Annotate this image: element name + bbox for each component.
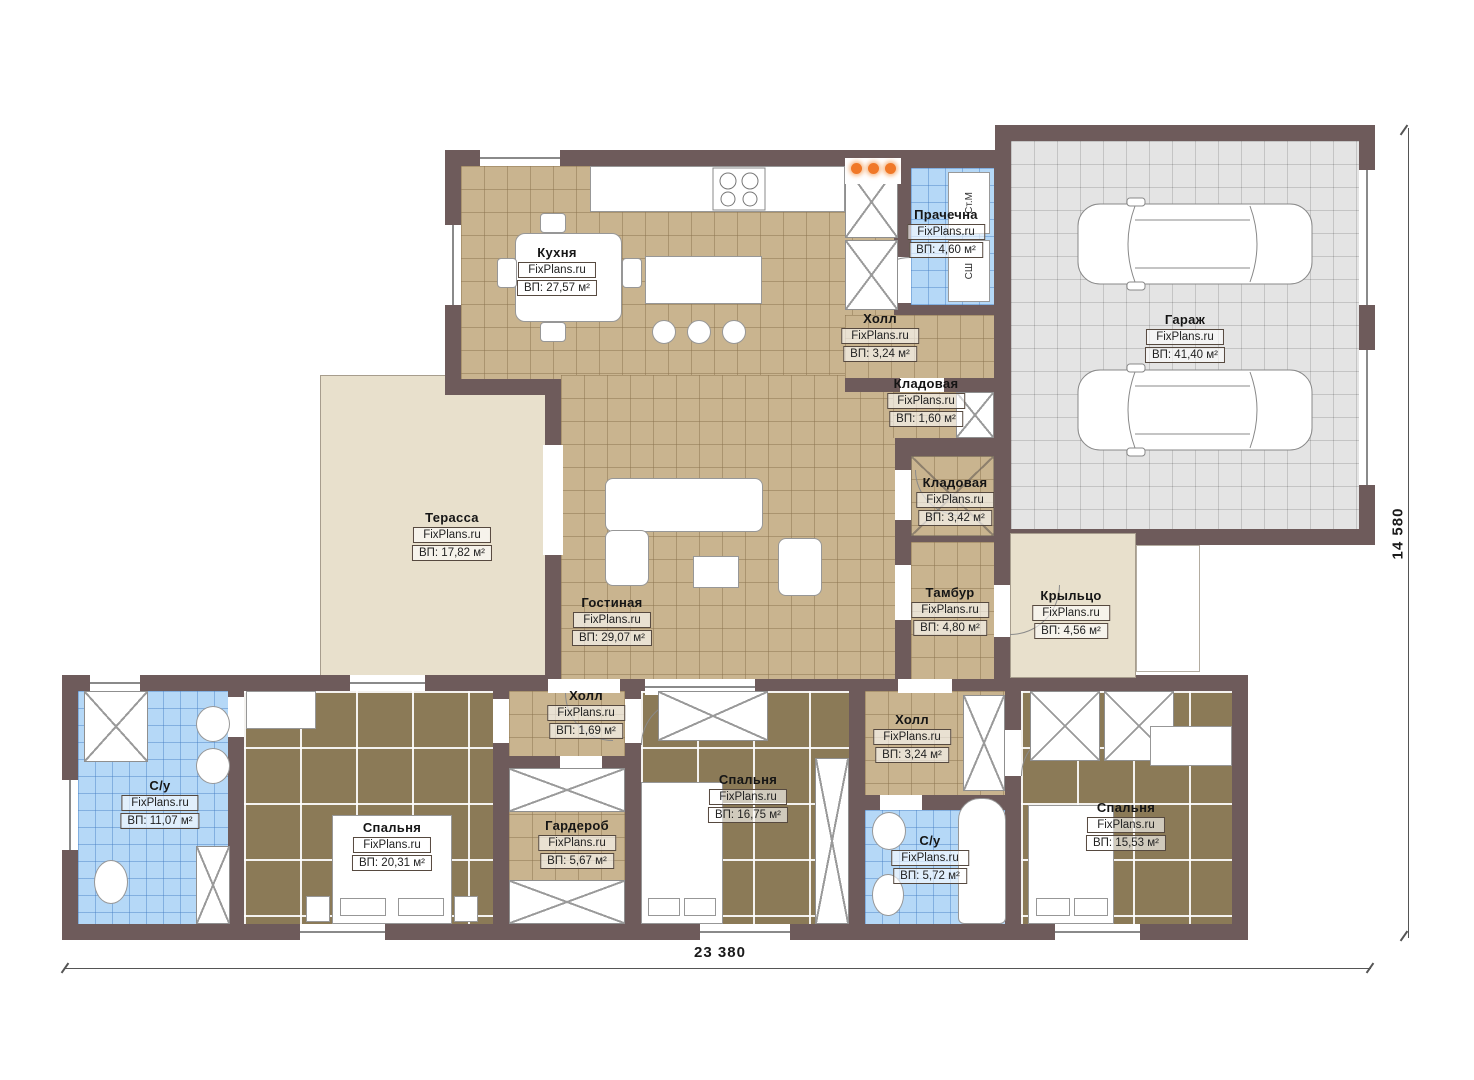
dining-chair	[622, 258, 642, 288]
bath-cabinet	[196, 846, 230, 924]
sink	[196, 748, 230, 784]
room-name: С/у	[149, 778, 170, 793]
pillow	[340, 898, 386, 916]
room-area: ВП: 3,24 м²	[875, 747, 949, 763]
room-name: Кладовая	[894, 376, 959, 391]
pendant-light-icon	[885, 163, 896, 174]
dresser	[246, 691, 316, 729]
closet	[815, 758, 849, 924]
watermark: FixPlans.ru	[121, 795, 199, 811]
room-area: ВП: 15,53 м²	[1086, 835, 1166, 851]
watermark: FixPlans.ru	[911, 602, 989, 618]
coffee-table	[693, 556, 739, 588]
watermark: FixPlans.ru	[573, 612, 651, 628]
bedroom-mid-window	[700, 924, 790, 940]
sink	[196, 706, 230, 742]
dimension-tick	[1400, 125, 1409, 136]
garage-gate-1	[1359, 170, 1375, 305]
dimension-tick	[1400, 931, 1409, 942]
room-label-wardrobe: Гардероб FixPlans.ru ВП: 5,67 м²	[538, 818, 616, 869]
wardrobe-closet	[509, 768, 625, 812]
room-name: Гостиная	[581, 595, 642, 610]
nightstand	[454, 896, 478, 922]
room-area: ВП: 27,57 м²	[517, 280, 597, 296]
fridge	[845, 240, 898, 310]
watermark: FixPlans.ru	[547, 705, 625, 721]
pendant-light-icon	[851, 163, 862, 174]
watermark: FixPlans.ru	[887, 393, 965, 409]
bath-mid-door	[880, 795, 922, 810]
watermark: FixPlans.ru	[353, 837, 431, 853]
bedroom-mid-door	[625, 699, 641, 743]
pillow	[1036, 898, 1070, 916]
room-name: Тамбур	[926, 585, 975, 600]
stove-icon	[712, 167, 766, 211]
room-name: Крыльцо	[1040, 588, 1101, 603]
dining-chair	[497, 258, 517, 288]
watermark: FixPlans.ru	[907, 224, 985, 240]
watermark: FixPlans.ru	[1087, 817, 1165, 833]
room-area: ВП: 17,82 м²	[412, 545, 492, 561]
room-label-bedroom-mid: Спальня FixPlans.ru ВП: 16,75 м²	[708, 772, 788, 823]
room-name: Холл	[569, 688, 603, 703]
room-area: ВП: 5,72 м²	[893, 868, 967, 884]
room-label-hall-top: Холл FixPlans.ru ВП: 3,24 м²	[841, 311, 919, 362]
watermark: FixPlans.ru	[518, 262, 596, 278]
bath-left-door	[228, 697, 244, 737]
room-area: ВП: 16,75 м²	[708, 807, 788, 823]
terrace-door-window	[350, 675, 425, 691]
bar-stool	[687, 320, 711, 344]
wardrobe-closet	[509, 880, 625, 924]
watermark: FixPlans.ru	[709, 789, 787, 805]
dimension-line-right	[1408, 128, 1409, 938]
room-label-bedroom-right: Спальня FixPlans.ru ВП: 15,53 м²	[1086, 800, 1166, 851]
pillow	[1074, 898, 1108, 916]
room-label-hall-bottom: Холл FixPlans.ru ВП: 3,24 м²	[873, 712, 951, 763]
garage-gate-2	[1359, 350, 1375, 485]
room-name: Гараж	[1165, 312, 1205, 327]
room-area: ВП: 3,24 м²	[843, 346, 917, 362]
storage-door	[895, 470, 911, 520]
room-area: ВП: 1,69 м²	[549, 723, 623, 739]
terrace-slider	[543, 445, 563, 555]
shower	[84, 691, 148, 762]
car-icon	[1075, 196, 1315, 292]
room-label-storage: Кладовая FixPlans.ru ВП: 3,42 м²	[916, 475, 994, 526]
wing-top-window	[90, 675, 140, 691]
kitchen-top-window	[480, 150, 560, 166]
pillow	[684, 898, 716, 916]
pillow	[398, 898, 444, 916]
room-label-kitchen: Кухня FixPlans.ru ВП: 27,57 м²	[517, 245, 597, 296]
room-label-garage: Гараж FixPlans.ru ВП: 41,40 м²	[1145, 312, 1225, 363]
room-area: ВП: 11,07 м²	[120, 813, 199, 829]
room-name: Спальня	[1097, 800, 1155, 815]
room-label-bedroom-left: Спальня FixPlans.ru ВП: 20,31 м²	[352, 820, 432, 871]
dryer-label: СШ	[964, 263, 975, 279]
porch-door	[994, 585, 1010, 637]
bedroom-right-door	[1005, 730, 1021, 776]
room-name: Холл	[863, 311, 897, 326]
room-area: ВП: 4,60 м²	[909, 242, 983, 258]
dresser	[1150, 726, 1232, 766]
room-name: Кладовая	[923, 475, 988, 490]
room-label-terrace: Терасса FixPlans.ru ВП: 17,82 м²	[412, 510, 492, 561]
watermark: FixPlans.ru	[916, 492, 994, 508]
room-area: ВП: 4,80 м²	[913, 620, 987, 636]
bath-left-window	[62, 780, 78, 850]
room-name: Спальня	[719, 772, 777, 787]
watermark: FixPlans.ru	[413, 527, 491, 543]
room-label-hall-small: Холл FixPlans.ru ВП: 1,69 м²	[547, 688, 625, 739]
pendant-light-icon	[868, 163, 879, 174]
kitchen-window	[445, 225, 461, 305]
closet	[658, 691, 768, 741]
room-label-laundry: Прачечна FixPlans.ru ВП: 4,60 м²	[907, 207, 985, 258]
bar-stool	[722, 320, 746, 344]
kitchen-island	[645, 256, 762, 304]
floor-plan: Ст.М СШ	[0, 0, 1474, 1080]
nightstand	[306, 896, 330, 922]
sofa-chaise	[605, 530, 649, 586]
room-label-porch: Крыльцо FixPlans.ru ВП: 4,56 м²	[1032, 588, 1110, 639]
watermark: FixPlans.ru	[1146, 329, 1224, 345]
dimension-line-bottom	[65, 968, 1371, 969]
porch-canopy-outline	[1136, 545, 1200, 672]
sofa	[605, 478, 763, 532]
watermark: FixPlans.ru	[841, 328, 919, 344]
closet	[1030, 691, 1100, 761]
room-area: ВП: 41,40 м²	[1145, 347, 1225, 363]
hall-bottom-opening	[898, 679, 952, 693]
bedroom-left-window	[300, 924, 385, 940]
watermark: FixPlans.ru	[891, 850, 969, 866]
bedroom-right-window	[1055, 924, 1140, 940]
dining-chair	[540, 213, 566, 233]
room-label-living: Гостиная FixPlans.ru ВП: 29,07 м²	[572, 595, 652, 646]
bar-stool	[652, 320, 676, 344]
room-area: ВП: 5,67 м²	[540, 853, 614, 869]
closet	[963, 695, 1005, 791]
room-name: Гардероб	[545, 818, 609, 833]
room-area: ВП: 29,07 м²	[572, 630, 652, 646]
room-area: ВП: 4,56 м²	[1034, 623, 1108, 639]
armchair	[778, 538, 822, 596]
dimension-height-label: 14 580	[1390, 464, 1407, 604]
room-label-storage-small: Кладовая FixPlans.ru ВП: 1,60 м²	[887, 376, 965, 427]
room-name: С/у	[919, 833, 940, 848]
bedroom-left-door	[493, 699, 509, 743]
watermark: FixPlans.ru	[538, 835, 616, 851]
toilet	[94, 860, 128, 904]
room-name: Прачечна	[914, 207, 978, 222]
room-name: Спальня	[363, 820, 421, 835]
room-name: Холл	[895, 712, 929, 727]
dining-chair	[540, 322, 566, 342]
room-name: Кухня	[537, 245, 577, 260]
wardrobe-door	[560, 756, 602, 768]
room-label-bath-left: С/у FixPlans.ru ВП: 11,07 м²	[120, 778, 199, 829]
room-label-vestibule: Тамбур FixPlans.ru ВП: 4,80 м²	[911, 585, 989, 636]
watermark: FixPlans.ru	[873, 729, 951, 745]
room-area: ВП: 20,31 м²	[352, 855, 432, 871]
room-label-bath-mid: С/у FixPlans.ru ВП: 5,72 м²	[891, 833, 969, 884]
vestibule-door	[895, 565, 911, 620]
watermark: FixPlans.ru	[1032, 605, 1110, 621]
dimension-width-label: 23 380	[640, 944, 800, 961]
pillow	[648, 898, 680, 916]
room-area: ВП: 1,60 м²	[889, 411, 963, 427]
room-name: Терасса	[425, 510, 479, 525]
room-area: ВП: 3,42 м²	[918, 510, 992, 526]
car-icon	[1075, 362, 1315, 458]
